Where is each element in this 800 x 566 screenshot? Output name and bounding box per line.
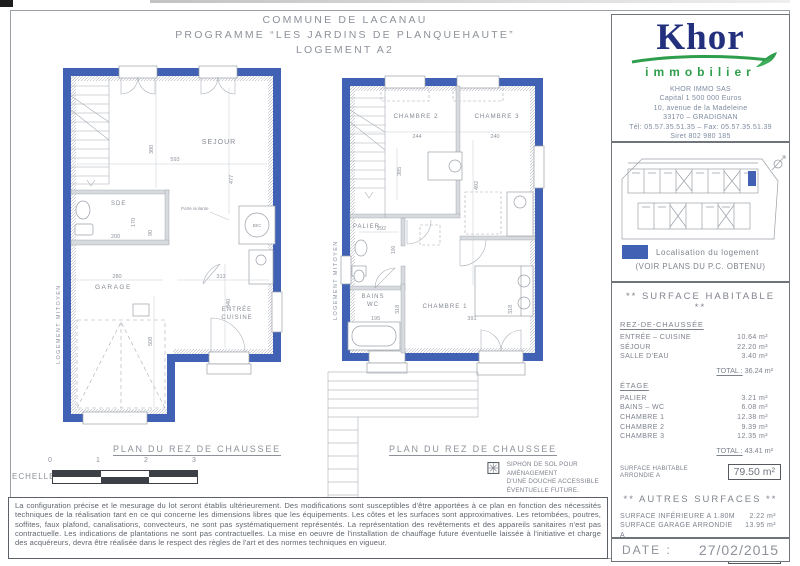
room-label-wc: WC bbox=[367, 302, 379, 308]
room-label-palier: PALIER bbox=[353, 224, 380, 230]
autres-surfaces-title: ** AUTRES SURFACES ** bbox=[620, 494, 781, 505]
room-label-sde: SDE bbox=[111, 201, 126, 207]
title-programme: PROGRAMME “LES JARDINS DE PLANQUEHAUTE” bbox=[95, 28, 595, 43]
surface-row: CHAMBRE 1 12.38 m² bbox=[620, 413, 781, 423]
dim-318a: 318 bbox=[395, 305, 401, 314]
dim-170: 170 bbox=[131, 218, 137, 227]
dim-90: 90 bbox=[148, 230, 154, 236]
scale-bar: ECHELLE 0 1 2 3 bbox=[12, 459, 207, 495]
legal-disclaimer: La configuration précise et le mesurage … bbox=[8, 497, 608, 559]
title-block: COMMUNE DE LACANAU PROGRAMME “LES JARDIN… bbox=[95, 13, 595, 58]
surfaces-box: ** SURFACE HABITABLE ** REZ-DE-CHAUSSÉE … bbox=[611, 282, 790, 538]
dim-385: 385 bbox=[397, 167, 403, 176]
dim-492: 492 bbox=[474, 181, 480, 190]
dim-593: 593 bbox=[170, 157, 179, 163]
dim-195: 195 bbox=[371, 316, 380, 322]
surface-row: CHAMBRE 2 9.39 m² bbox=[620, 423, 781, 433]
localisation-box: Localisation du logement (VOIR PLANS DU … bbox=[611, 142, 790, 282]
khor-logo: Khor bbox=[626, 19, 776, 67]
room-label-cuisine: CUISINE bbox=[221, 315, 252, 321]
logo-subtitle: immobilier bbox=[612, 65, 789, 79]
site-plan bbox=[612, 147, 789, 243]
room-label-garage: GARAGE bbox=[95, 284, 132, 291]
logo-box: Khor immobilier KHOR IMMO SAS Capital 1 … bbox=[611, 14, 790, 142]
scale-tick-1: 1 bbox=[96, 457, 100, 464]
location-legend-swatch bbox=[622, 245, 648, 259]
exterior-steps bbox=[328, 372, 478, 508]
surface-row: SÉJOUR 22.20 m² bbox=[620, 343, 781, 353]
siphon-legend: SIPHON DE SOL POUR AMÉNAGEMENT D'UNE DOU… bbox=[487, 461, 619, 495]
date-value: 27/02/2015 bbox=[699, 542, 779, 558]
location-legend-label: Localisation du logement bbox=[656, 248, 759, 257]
surface-row: ENTRÉE – CUISINE 10.64 m² bbox=[620, 333, 781, 343]
dim-318b: 318 bbox=[508, 305, 514, 314]
room-label-sejour: SEJOUR bbox=[202, 139, 236, 146]
company-line: Capital 1 500 000 Euros bbox=[612, 94, 789, 103]
dim-200: 200 bbox=[111, 234, 120, 240]
dim-292: 292 bbox=[377, 226, 386, 232]
upper-floor-plan: CHAMBRE 2 CHAMBRE 3 PALIER BAINS WC CHAM… bbox=[325, 70, 550, 525]
scale-label: ECHELLE bbox=[12, 472, 55, 481]
rdc-total: TOTAL : 36.24 m² bbox=[620, 366, 773, 375]
date-label: DATE : bbox=[622, 543, 672, 557]
room-label-bains: BAINS bbox=[361, 294, 384, 300]
dim-380: 380 bbox=[149, 145, 155, 154]
etage-header: ÉTAGE bbox=[620, 381, 781, 390]
dim-280: 280 bbox=[112, 274, 121, 280]
dim-340: 340 bbox=[226, 299, 232, 308]
fixtures bbox=[75, 201, 275, 316]
habitable-arrondie: SURFACE HABITABLE ARRONDIE A 79.50 m² bbox=[620, 464, 781, 480]
date-box: DATE : 27/02/2015 bbox=[611, 538, 790, 562]
company-line: Siret 802 980 185 bbox=[612, 132, 789, 141]
staircase bbox=[350, 86, 385, 218]
company-line: Tél: 05.57.35.51.35 – Fax: 05.57.35.51.3… bbox=[612, 123, 789, 132]
upper-plan-title: PLAN DU REZ DE CHAUSSEE bbox=[378, 444, 568, 454]
surface-row: BAINS – WC 6.08 m² bbox=[620, 403, 781, 413]
rdc-header: REZ-DE-CHAUSSÉE bbox=[620, 320, 781, 329]
dim-244: 244 bbox=[412, 134, 421, 140]
annotation-porte-isolante: Porte isolante bbox=[181, 206, 209, 211]
title-commune: COMMUNE DE LACANAU bbox=[95, 13, 595, 28]
annotation-bec: BEC bbox=[253, 223, 262, 228]
scale-tick-3: 3 bbox=[192, 457, 196, 464]
room-label-chambre2: CHAMBRE 2 bbox=[393, 113, 438, 120]
ground-plan-title: PLAN DU REZ DE CHAUSSEE bbox=[102, 444, 292, 454]
compass-icon bbox=[772, 156, 785, 170]
party-wall-label-ground: LOGEMENT MITOYEN bbox=[56, 284, 62, 364]
dim-100: 100 bbox=[391, 245, 397, 254]
surface-habitable-title: ** SURFACE HABITABLE ** bbox=[620, 291, 781, 313]
scale-bar-graphic bbox=[52, 470, 198, 484]
surface-row: SALLE D'EAU 3.40 m² bbox=[620, 352, 781, 362]
siphon-note: SIPHON DE SOL POUR AMÉNAGEMENT D'UNE DOU… bbox=[507, 461, 619, 495]
scale-tick-2: 2 bbox=[144, 457, 148, 464]
surface-row: SURFACE INFÉRIEURE A 1.80M 2.22 m² bbox=[620, 512, 781, 522]
scale-tick-0: 0 bbox=[48, 457, 52, 464]
company-line: 33170 – GRADIGNAN bbox=[612, 113, 789, 122]
scan-artifact bbox=[0, 0, 13, 7]
surface-row: PALIER 3.21 m² bbox=[620, 394, 781, 404]
unit-location-marker bbox=[748, 171, 756, 186]
garage-marking bbox=[77, 320, 165, 408]
room-label-chambre1: CHAMBRE 1 bbox=[422, 303, 467, 310]
company-line: KHOR IMMO SAS bbox=[612, 85, 789, 94]
habitable-value: 79.50 m² bbox=[728, 464, 781, 480]
dim-508: 508 bbox=[148, 337, 154, 346]
plan-sheet: COMMUNE DE LACANAU PROGRAMME “LES JARDIN… bbox=[0, 0, 800, 566]
scan-artifact bbox=[150, 0, 790, 3]
ground-dimensions: 593 380 477 170 200 90 280 313 508 340 bbox=[111, 145, 235, 346]
company-line: 10, avenue de la Madeleine bbox=[612, 104, 789, 113]
company-info: KHOR IMMO SAS Capital 1 500 000 Euros 10… bbox=[612, 85, 789, 151]
staircase bbox=[71, 78, 109, 186]
location-note: (VOIR PLANS DU P.C. OBTENU) bbox=[612, 262, 789, 271]
room-label-chambre3: CHAMBRE 3 bbox=[474, 113, 519, 120]
party-wall-label-upper: LOGEMENT MITOYEN bbox=[333, 240, 339, 320]
dim-313: 313 bbox=[216, 274, 225, 280]
title-logement: LOGEMENT A2 bbox=[95, 43, 595, 58]
surface-row: CHAMBRE 3 12.35 m² bbox=[620, 432, 781, 442]
dim-391: 391 bbox=[467, 316, 476, 322]
etage-total: TOTAL : 43.41 m² bbox=[620, 446, 773, 455]
ground-floor-plan: SEJOUR SDE GARAGE ENTRÉE CUISINE 593 380… bbox=[53, 64, 287, 426]
siphon-icon bbox=[487, 461, 500, 475]
dim-240: 240 bbox=[490, 134, 499, 140]
dim-477: 477 bbox=[229, 175, 235, 184]
